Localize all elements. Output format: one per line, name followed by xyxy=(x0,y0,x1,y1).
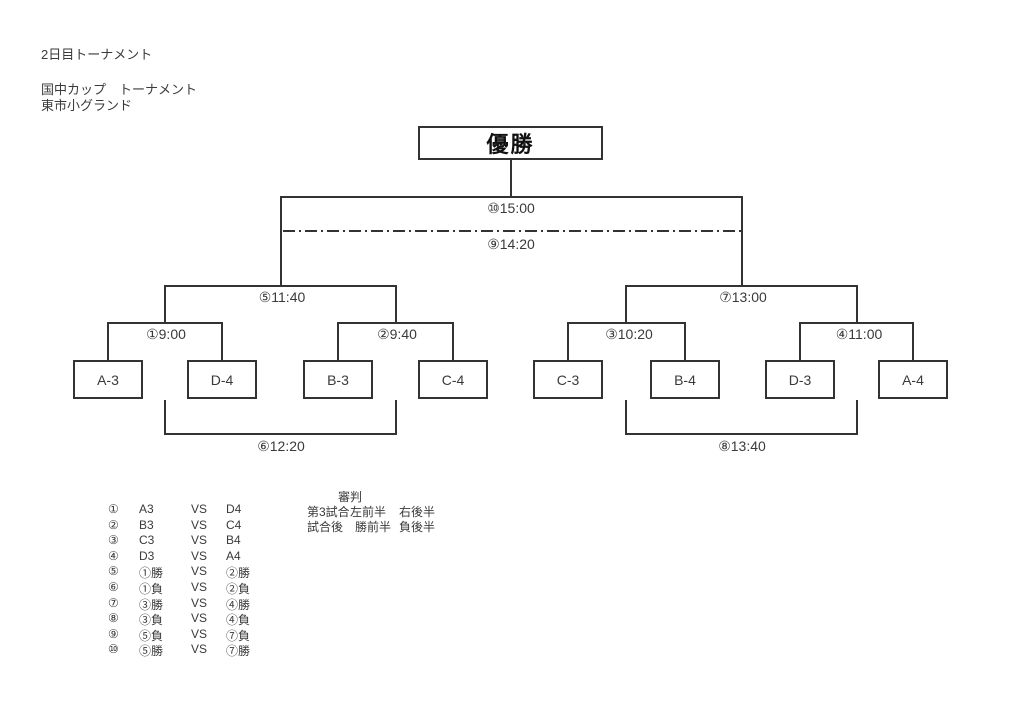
team-box-a-3: A-3 xyxy=(73,360,143,399)
schedule-row-3: ③ C3 VS B4 xyxy=(108,533,288,549)
schedule-row-8: ⑧ ③負 VS ④負 xyxy=(108,611,288,627)
team-label: C-4 xyxy=(442,372,465,388)
team-box-c-3: C-3 xyxy=(533,360,603,399)
match-label-10: ⑩15:00 xyxy=(487,200,535,217)
left-team: ①負 xyxy=(139,580,163,597)
match-number: ⑨ xyxy=(108,627,119,641)
schedule-row-6: ⑥ ①負 VS ②負 xyxy=(108,580,288,596)
team-label: B-4 xyxy=(674,372,696,388)
right-team: ②勝 xyxy=(226,564,250,581)
right-team: ⑦勝 xyxy=(226,642,250,659)
match6-consolation-line xyxy=(165,400,396,434)
team-label: A-3 xyxy=(97,372,119,388)
vs-label: VS xyxy=(191,596,207,610)
match-number: ⑤ xyxy=(108,564,119,578)
schedule-row-7: ⑦ ③勝 VS ④勝 xyxy=(108,596,288,612)
referee-match: 試合後 xyxy=(307,518,343,535)
schedule-row-4: ④ D3 VS A4 xyxy=(108,549,288,565)
match-number: ⑦ xyxy=(108,596,119,610)
team-box-d-3: D-3 xyxy=(765,360,835,399)
referee-second-half: 負後半 xyxy=(399,518,435,535)
right-team: B4 xyxy=(226,533,241,547)
schedule-row-2: ② B3 VS C4 xyxy=(108,518,288,534)
right-team: A4 xyxy=(226,549,241,563)
match-label-4: ④11:00 xyxy=(836,326,883,343)
schedule-row-10: ⑩ ⑤勝 VS ⑦勝 xyxy=(108,642,288,658)
right-team: ②負 xyxy=(226,580,250,597)
left-team: C3 xyxy=(139,533,154,547)
match-label-6: ⑥12:20 xyxy=(257,438,305,455)
left-team: ③負 xyxy=(139,611,163,628)
match-label-5: ⑤11:40 xyxy=(259,289,306,306)
left-team: A3 xyxy=(139,502,154,516)
match-number: ⑧ xyxy=(108,611,119,625)
team-label: C-3 xyxy=(557,372,580,388)
schedule-row-1: ① A3 VS D4 xyxy=(108,502,288,518)
left-team: ⑤負 xyxy=(139,627,163,644)
schedule-row-9: ⑨ ⑤負 VS ⑦負 xyxy=(108,627,288,643)
match-number: ⑩ xyxy=(108,642,119,656)
team-label: D-3 xyxy=(789,372,812,388)
team-label: D-4 xyxy=(211,372,234,388)
vs-label: VS xyxy=(191,549,207,563)
right-team: ④勝 xyxy=(226,596,250,613)
right-team: D4 xyxy=(226,502,241,516)
match-number: ② xyxy=(108,518,119,532)
team-box-a-4: A-4 xyxy=(878,360,948,399)
vs-label: VS xyxy=(191,611,207,625)
match-label-7: ⑦13:00 xyxy=(719,289,767,306)
team-box-b-3: B-3 xyxy=(303,360,373,399)
right-team: ④負 xyxy=(226,611,250,628)
match-label-2: ②9:40 xyxy=(377,326,417,343)
left-team: ⑤勝 xyxy=(139,642,163,659)
vs-label: VS xyxy=(191,564,207,578)
match-number: ③ xyxy=(108,533,119,547)
left-team: ①勝 xyxy=(139,564,163,581)
right-team: ⑦負 xyxy=(226,627,250,644)
match-label-8: ⑧13:40 xyxy=(718,438,766,455)
schedule-row-5: ⑤ ①勝 VS ②勝 xyxy=(108,564,288,580)
left-team: ③勝 xyxy=(139,596,163,613)
team-box-c-4: C-4 xyxy=(418,360,488,399)
left-team: D3 xyxy=(139,549,154,563)
match-label-3: ③10:20 xyxy=(605,326,653,343)
team-label: A-4 xyxy=(902,372,924,388)
vs-label: VS xyxy=(191,502,207,516)
match-label-9: ⑨14:20 xyxy=(487,236,535,253)
team-label: B-3 xyxy=(327,372,349,388)
tournament-bracket-page: 2日目トーナメント 国中カップ トーナメント 東市小グランド 優勝 ⑩15:00… xyxy=(0,0,1024,724)
team-box-b-4: B-4 xyxy=(650,360,720,399)
vs-label: VS xyxy=(191,518,207,532)
vs-label: VS xyxy=(191,627,207,641)
vs-label: VS xyxy=(191,642,207,656)
match8-consolation-line xyxy=(626,400,857,434)
match-number: ① xyxy=(108,502,119,516)
match-number: ⑥ xyxy=(108,580,119,594)
match-number: ④ xyxy=(108,549,119,563)
match-label-1: ①9:00 xyxy=(146,326,186,343)
vs-label: VS xyxy=(191,580,207,594)
team-box-d-4: D-4 xyxy=(187,360,257,399)
match-schedule-list: ① A3 VS D4 ② B3 VS C4 ③ C3 VS B4 ④ D3 VS… xyxy=(108,502,288,658)
right-team: C4 xyxy=(226,518,241,532)
referee-first-half: 勝前半 xyxy=(355,518,391,535)
left-team: B3 xyxy=(139,518,154,532)
vs-label: VS xyxy=(191,533,207,547)
